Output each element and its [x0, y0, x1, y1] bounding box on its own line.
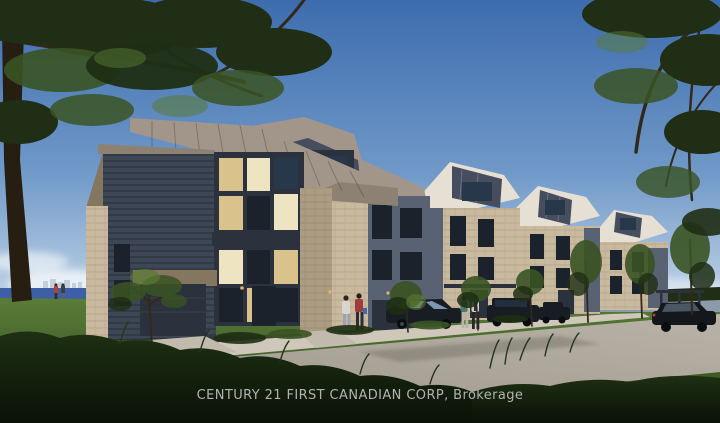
shopping-bag: [363, 308, 367, 314]
entry-door: [252, 286, 276, 326]
scene-canvas: [0, 0, 720, 423]
dormer-window: [462, 182, 492, 201]
wall-sconce: [328, 290, 332, 294]
wall-sconce: [240, 286, 244, 290]
dormer-window: [545, 200, 565, 215]
dormer-window: [620, 218, 636, 230]
townhouse-rendering: CENTURY 21 FIRST CANADIAN CORP, Brokerag…: [0, 0, 720, 423]
brokerage-watermark: CENTURY 21 FIRST CANADIAN CORP, Brokerag…: [0, 388, 720, 403]
wall-sconce: [386, 291, 389, 294]
taillight: [653, 314, 656, 317]
